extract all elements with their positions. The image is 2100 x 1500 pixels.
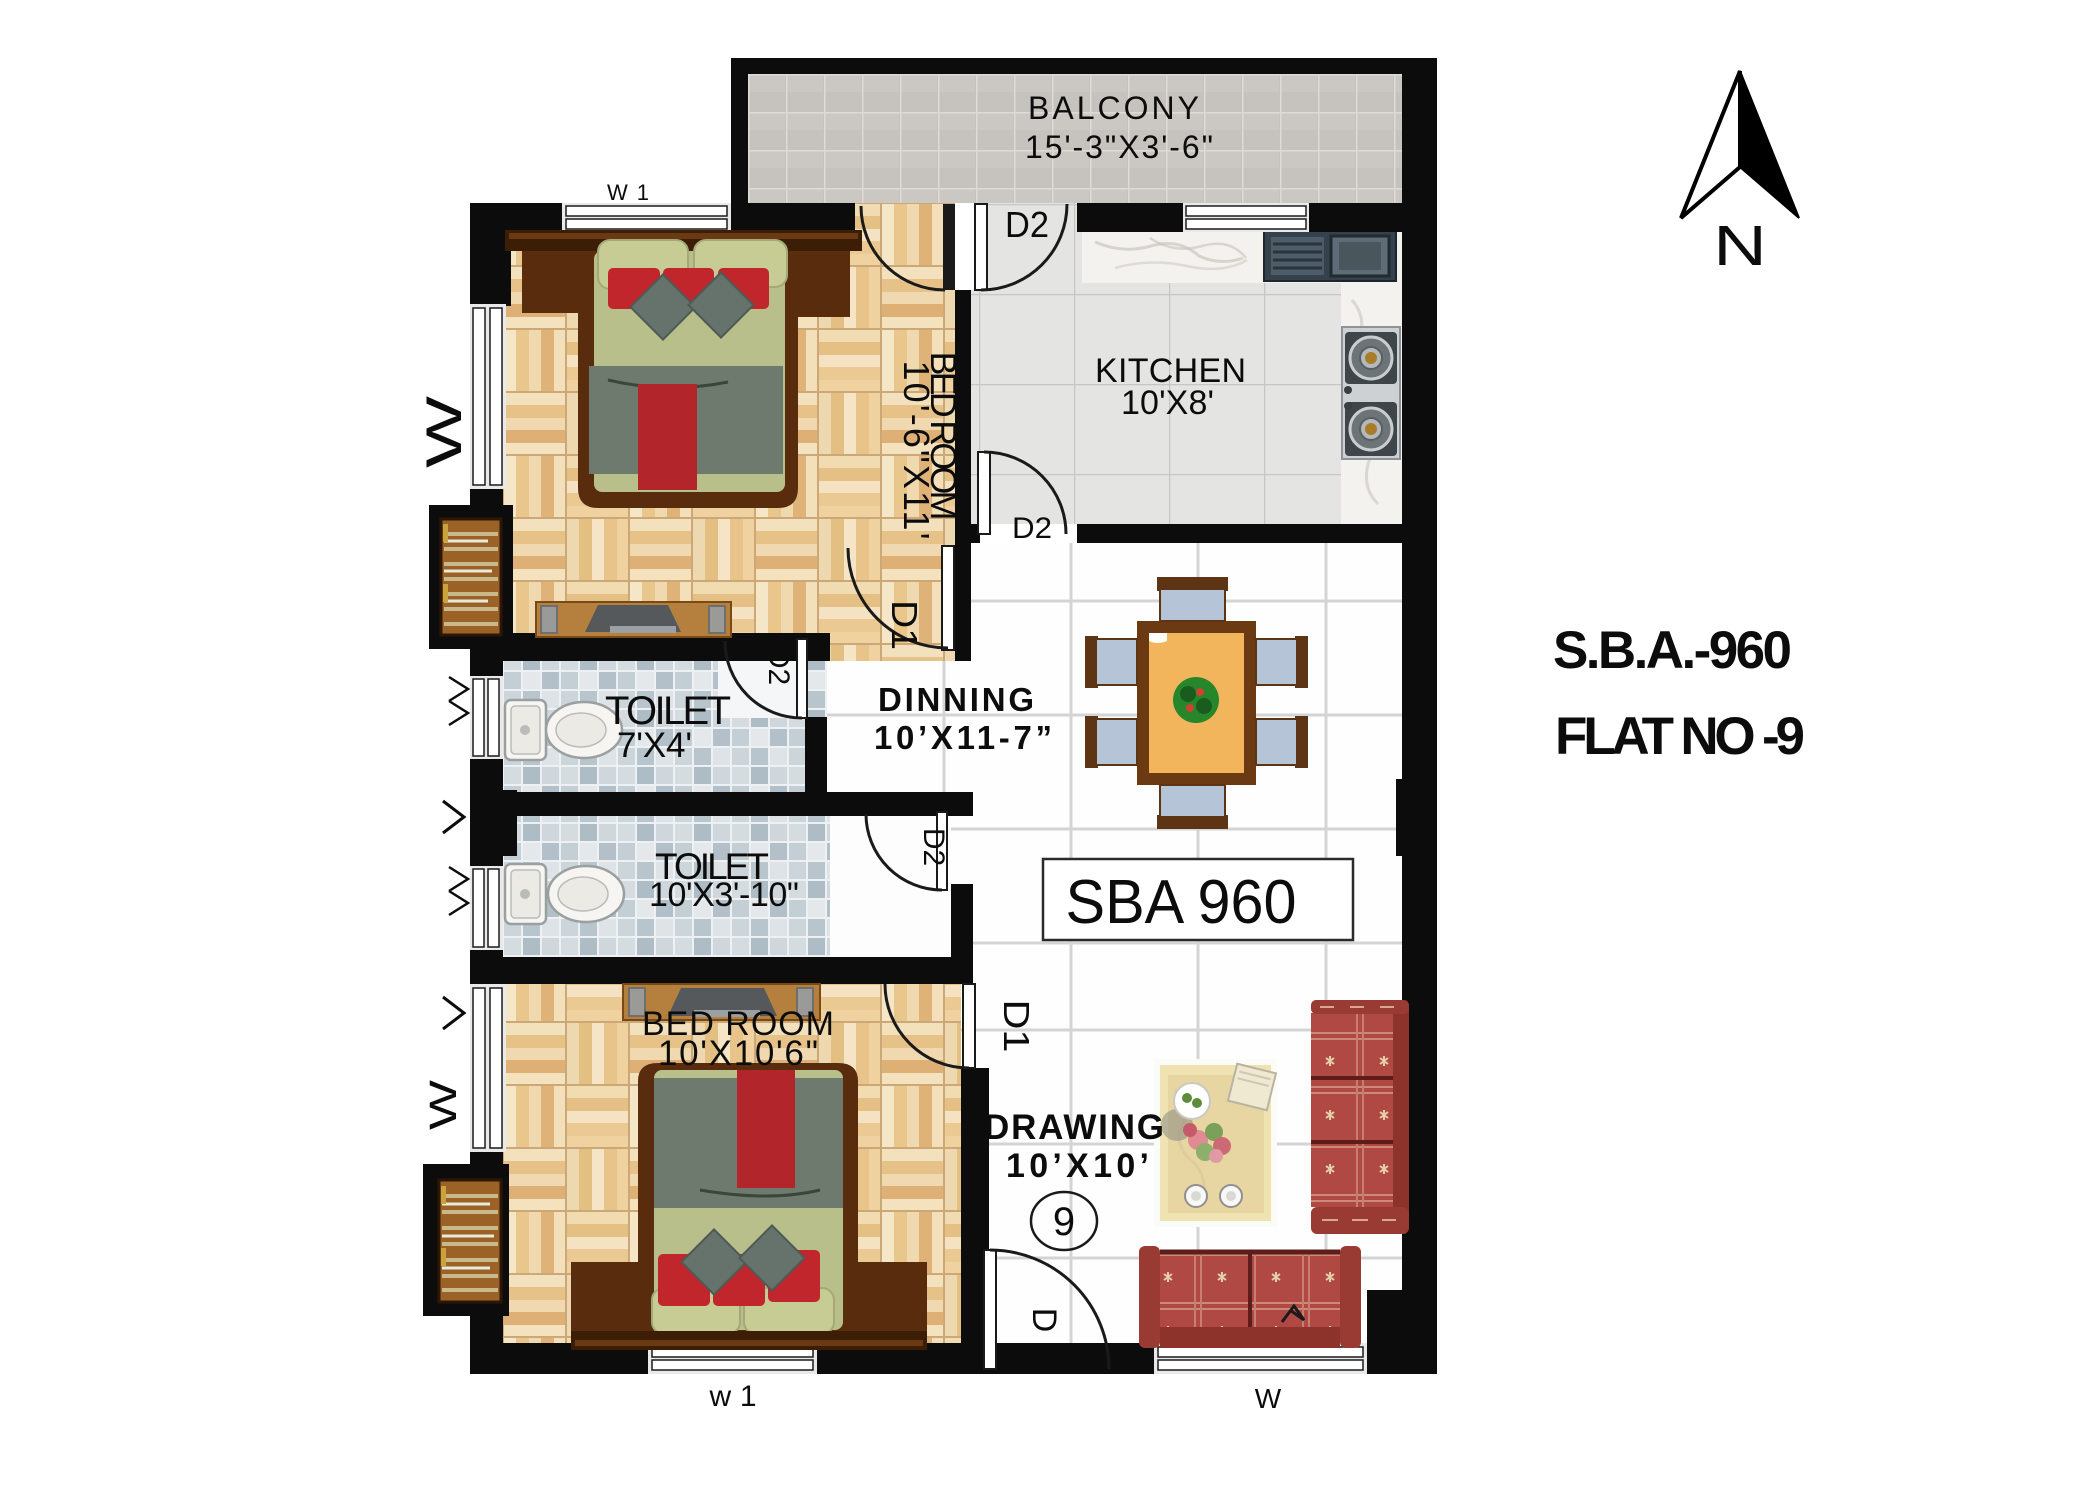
- svg-text:S.B.A.-960: S.B.A.-960: [1553, 621, 1792, 680]
- svg-text:BALCONY: BALCONY: [1028, 90, 1199, 126]
- svg-text:FLAT NO -9: FLAT NO -9: [1555, 707, 1805, 766]
- svg-text:N: N: [1713, 214, 1767, 278]
- svg-text:10’X11-7”: 10’X11-7”: [874, 719, 1052, 756]
- svg-text:D2: D2: [917, 828, 950, 866]
- svg-text:DRAWING: DRAWING: [984, 1108, 1164, 1147]
- svg-text:10'X8': 10'X8': [1121, 384, 1214, 422]
- svg-text:DINNING: DINNING: [878, 681, 1034, 718]
- svg-text:D2: D2: [1012, 512, 1052, 545]
- svg-text:SBA 960: SBA 960: [1066, 868, 1297, 937]
- svg-text:15'-3"X3'-6": 15'-3"X3'-6": [1025, 129, 1213, 165]
- svg-text:W: W: [1255, 1383, 1282, 1414]
- svg-text:D1: D1: [884, 600, 925, 650]
- svg-text:10'X3'-10": 10'X3'-10": [649, 876, 799, 914]
- svg-text:7'X4': 7'X4': [617, 726, 692, 765]
- svg-text:W: W: [416, 395, 472, 468]
- svg-text:D2: D2: [1005, 204, 1049, 245]
- svg-text:D2: D2: [762, 647, 795, 685]
- svg-text:D1: D1: [996, 1000, 1037, 1053]
- svg-text:W: W: [423, 1080, 465, 1130]
- svg-text:10'-6"X11': 10'-6"X11': [896, 361, 937, 540]
- svg-text:10'X10'6": 10'X10'6": [658, 1034, 818, 1073]
- svg-text:D: D: [1025, 1308, 1063, 1333]
- svg-text:9: 9: [1053, 1200, 1075, 1244]
